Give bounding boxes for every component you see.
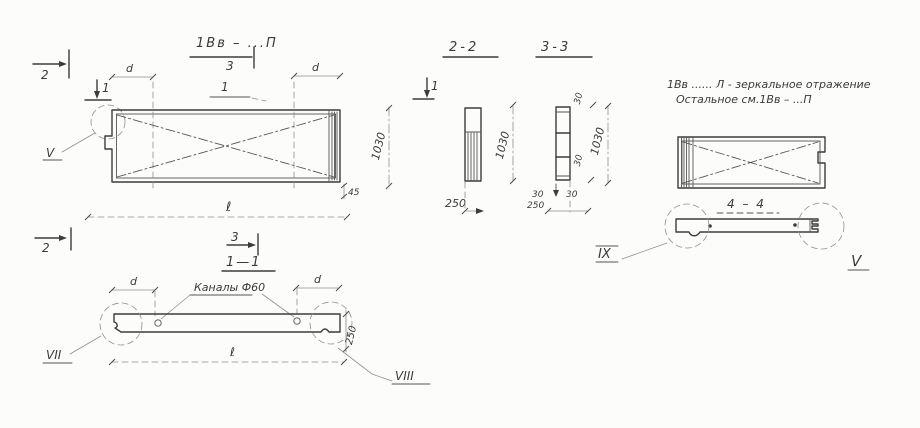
dim-1030-s22: 1030 bbox=[493, 130, 512, 160]
detail-mark-v-right: V bbox=[851, 252, 863, 270]
plan-title: 1Вв – ...П bbox=[196, 36, 278, 51]
dim-30-mid: 30 bbox=[573, 153, 586, 167]
cut-mark-1-s22: 1 bbox=[431, 79, 439, 93]
cut-mark-2-bottom: 2 bbox=[42, 241, 50, 255]
section-1-1-title: 1—1 bbox=[226, 255, 262, 270]
panel-outline bbox=[105, 110, 340, 182]
dim-30-top: 30 bbox=[573, 91, 586, 105]
dim-length-s11: ℓ bbox=[229, 345, 235, 359]
dim-d-left-s11: d bbox=[130, 275, 138, 288]
detail-mark-viii: VIII bbox=[395, 369, 414, 383]
arrow-down-icon bbox=[424, 90, 430, 98]
plan-view: 1Вв – ...П 3 2 1 V d bbox=[33, 36, 392, 255]
drawing-sheet: 1Вв – ...П 3 2 1 V d bbox=[0, 0, 920, 428]
section-3-3: 3-3 30 1030 30 30 30 250 bbox=[527, 40, 611, 214]
dim-1030-s33: 1030 bbox=[588, 126, 607, 156]
dim-length-plan: ℓ bbox=[225, 200, 231, 215]
channel-hole bbox=[793, 223, 797, 227]
section-1-1-bar bbox=[114, 314, 340, 332]
note-line-2: Остальное см.1Вв – ...П bbox=[676, 93, 812, 106]
dim-45: 45 bbox=[348, 188, 360, 198]
section-4-4-bar bbox=[676, 219, 818, 236]
detail-mark-v: V bbox=[46, 146, 55, 160]
dim-30-left: 30 bbox=[532, 190, 544, 200]
dim-d-right-s11: d bbox=[314, 273, 322, 286]
arrow-down-icon bbox=[94, 91, 100, 99]
arrow-right-icon bbox=[59, 61, 67, 67]
channel-hole bbox=[294, 318, 300, 324]
section-3-3-body bbox=[556, 107, 570, 180]
cut-mark-3-top: 3 bbox=[226, 59, 234, 73]
detail-mark-vii: VII bbox=[46, 348, 62, 362]
dim-250-s22: 250 bbox=[445, 197, 466, 210]
channels-label: Каналы Ф60 bbox=[194, 281, 265, 294]
section-2-2-title: 2-2 bbox=[449, 40, 479, 55]
arrow-right-icon bbox=[59, 235, 67, 241]
mirror-view: 1Вв ...... Л - зеркальное отражение Оста… bbox=[596, 78, 871, 270]
arrow-down-icon bbox=[553, 190, 559, 197]
arrow-right-icon bbox=[476, 208, 484, 214]
section-4-4-title: 4 – 4 bbox=[727, 197, 766, 211]
section-2-2-body bbox=[465, 108, 481, 181]
dim-1030-plan: 1030 bbox=[369, 131, 388, 161]
cut-mark-2-top: 2 bbox=[41, 68, 49, 82]
channel-hole bbox=[155, 320, 161, 326]
cut-mark-1-top: 1 bbox=[102, 81, 110, 95]
blueprint-svg: 1Вв – ...П 3 2 1 V d bbox=[0, 0, 920, 428]
section-1-1: 1—1 Каналы Ф60 d d 250 ℓ VII VIII bbox=[43, 255, 430, 384]
arrow-right-icon bbox=[248, 242, 256, 248]
dim-d-left: d bbox=[126, 62, 134, 75]
detail-mark-ix: IX bbox=[598, 247, 612, 262]
dim-d-right: d bbox=[312, 61, 320, 74]
dim-250-s33: 250 bbox=[527, 201, 544, 211]
cut-mark-3-bottom: 3 bbox=[231, 230, 239, 244]
callout-1: 1 bbox=[221, 80, 229, 94]
dim-30-right: 30 bbox=[566, 190, 578, 200]
detail-circle bbox=[100, 303, 142, 345]
section-3-3-title: 3-3 bbox=[541, 40, 571, 55]
note-line-1: 1Вв ...... Л - зеркальное отражение bbox=[667, 78, 871, 91]
detail-circle bbox=[798, 203, 844, 249]
detail-circle bbox=[665, 204, 709, 248]
section-2-2: 2-2 1 1030 250 bbox=[413, 40, 516, 214]
